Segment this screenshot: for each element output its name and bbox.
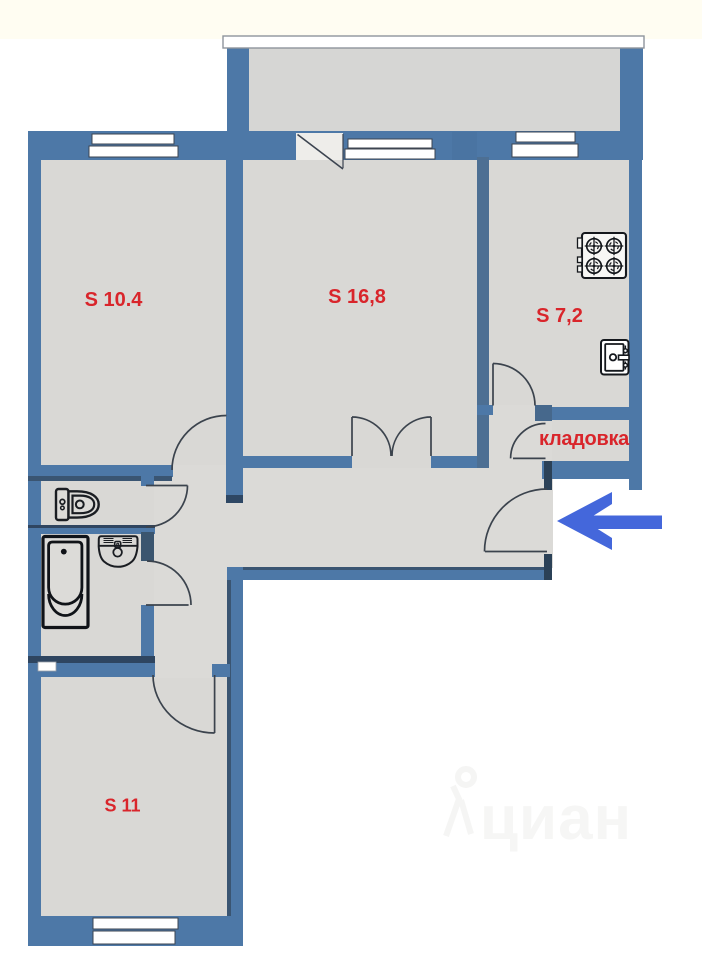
svg-text:S 11: S 11: [104, 796, 140, 816]
svg-text:S 7,2: S 7,2: [536, 305, 583, 327]
svg-text:S 10.4: S 10.4: [85, 289, 144, 311]
svg-text:кладовка: кладовка: [539, 428, 630, 450]
svg-text:S 16,8: S 16,8: [328, 286, 386, 308]
svg-text:циан: циан: [480, 784, 632, 853]
